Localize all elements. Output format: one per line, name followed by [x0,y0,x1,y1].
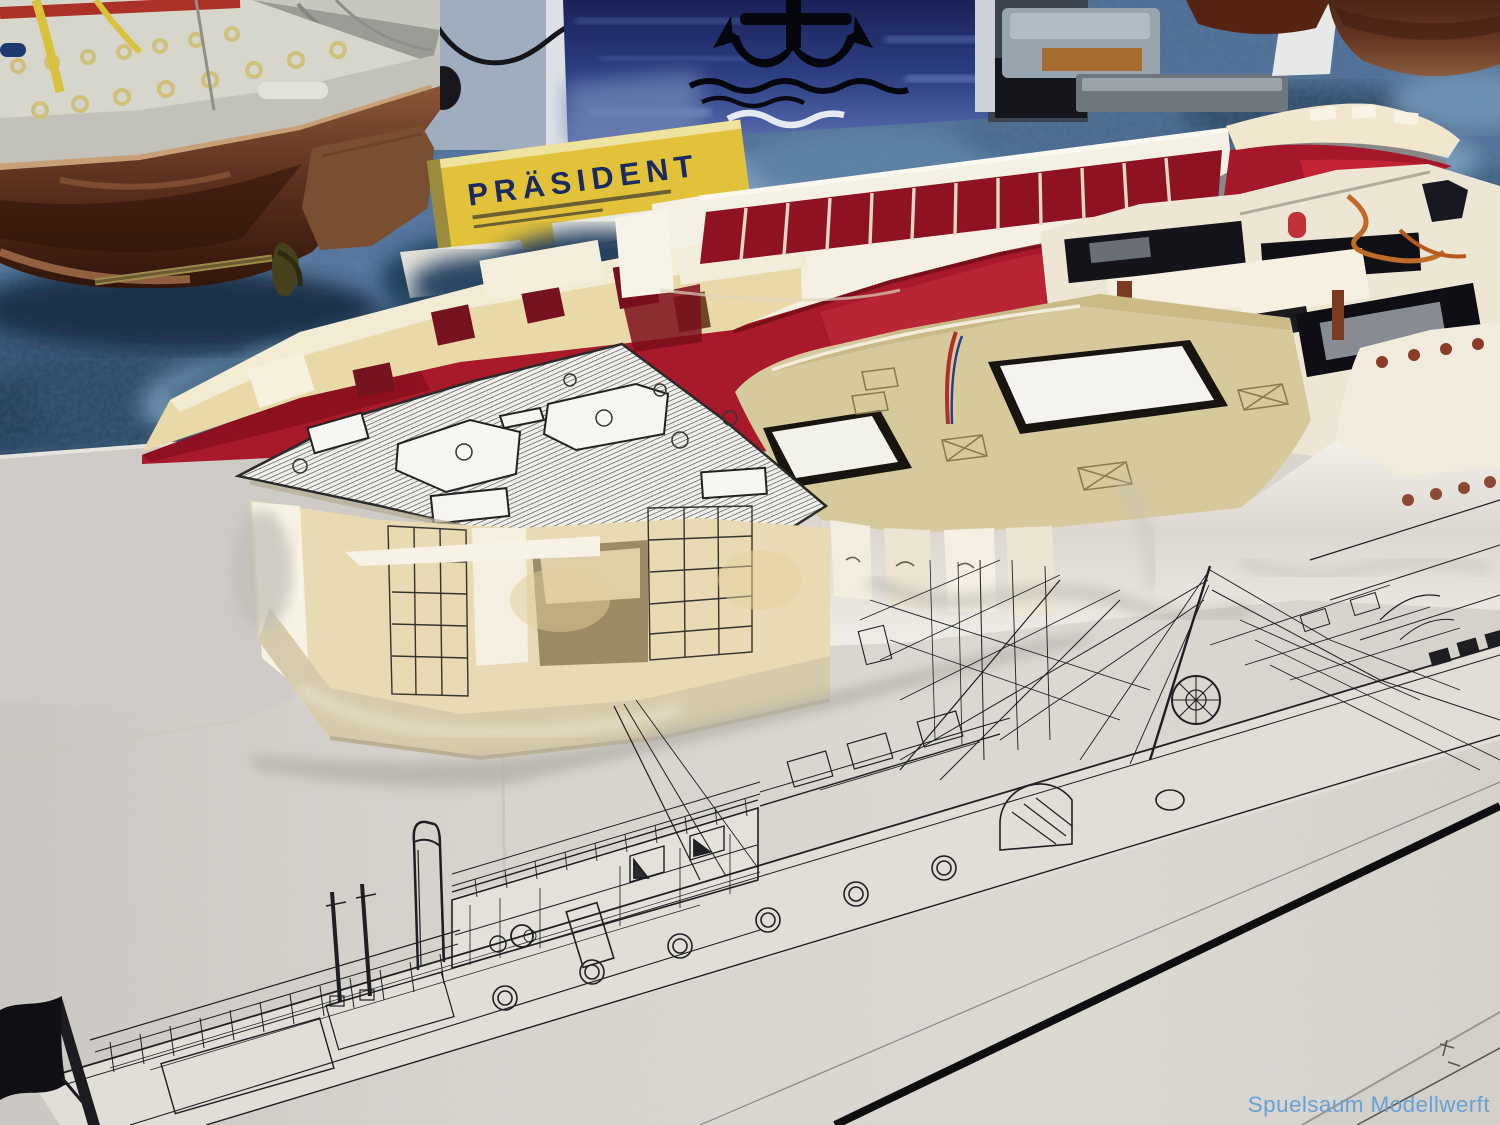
svg-text:Spuelsaum Modellwerft: Spuelsaum Modellwerft [1248,1092,1491,1117]
